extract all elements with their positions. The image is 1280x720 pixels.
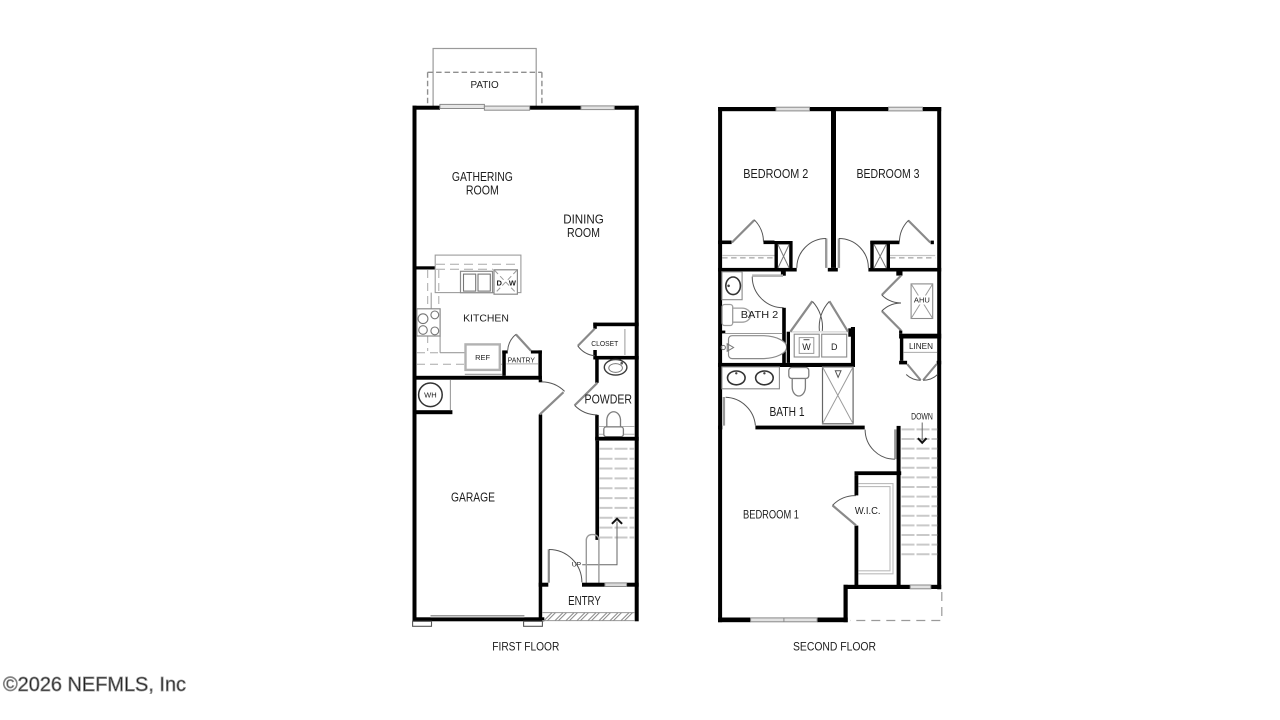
svg-text:D: D [831, 342, 838, 352]
svg-text:DOWN: DOWN [911, 412, 933, 422]
svg-text:GATHERING: GATHERING [452, 170, 513, 184]
svg-text:GARAGE: GARAGE [451, 490, 495, 504]
svg-text:BATH 1: BATH 1 [770, 405, 805, 419]
svg-text:KITCHEN: KITCHEN [463, 313, 509, 324]
svg-text:CLOSET: CLOSET [591, 339, 618, 348]
svg-text:BEDROOM 2: BEDROOM 2 [743, 167, 808, 181]
svg-text:W: W [509, 278, 517, 287]
svg-text:ENTRY: ENTRY [568, 594, 601, 608]
svg-text:BEDROOM 1: BEDROOM 1 [743, 507, 799, 521]
svg-text:W.I.C.: W.I.C. [855, 506, 881, 517]
svg-text:REF: REF [475, 353, 490, 362]
svg-text:ROOM: ROOM [567, 226, 600, 240]
svg-text:PANTRY: PANTRY [508, 355, 535, 364]
svg-text:BATH 2: BATH 2 [741, 310, 779, 321]
svg-text:FIRST FLOOR: FIRST FLOOR [492, 641, 559, 654]
svg-text:©2026 NEFMLS, Inc: ©2026 NEFMLS, Inc [3, 674, 186, 696]
svg-text:PATIO: PATIO [470, 80, 499, 91]
svg-text:ROOM: ROOM [466, 183, 499, 197]
svg-text:DINING: DINING [563, 212, 604, 226]
svg-text:LINEN: LINEN [909, 342, 933, 351]
svg-text:WH: WH [424, 391, 437, 400]
svg-text:POWDER: POWDER [585, 393, 633, 407]
svg-text:SECOND FLOOR: SECOND FLOOR [793, 641, 876, 654]
svg-text:BEDROOM 3: BEDROOM 3 [857, 167, 920, 181]
svg-text:W: W [802, 342, 811, 352]
svg-text:D: D [496, 278, 502, 287]
svg-text:AHU: AHU [914, 296, 930, 305]
